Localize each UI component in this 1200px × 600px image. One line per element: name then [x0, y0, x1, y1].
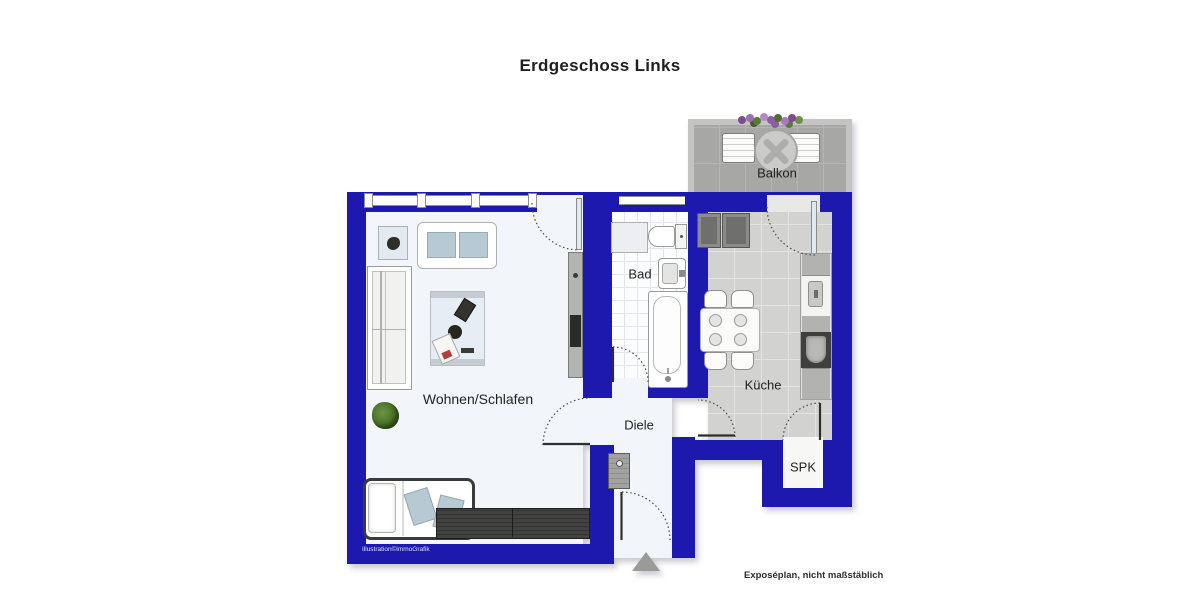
illustration-credit: Illustration©immoGrafik — [362, 546, 430, 553]
floor-plan: Balkon — [347, 119, 852, 574]
plan-title: Erdgeschoss Links — [450, 56, 750, 76]
page: Erdgeschoss Links Balkon — [0, 0, 1200, 600]
entrance-arrow — [632, 552, 660, 571]
room-label-bath: Bad — [628, 267, 651, 282]
room-label-hall: Diele — [624, 418, 654, 433]
door-swing-arcs — [347, 119, 852, 574]
room-label-pantry: SPK — [790, 460, 816, 475]
room-label-living: Wohnen/Schlafen — [423, 391, 533, 407]
scale-note: Exposéplan, nicht maßstäblich — [744, 570, 883, 581]
room-label-kitchen: Küche — [745, 378, 782, 393]
